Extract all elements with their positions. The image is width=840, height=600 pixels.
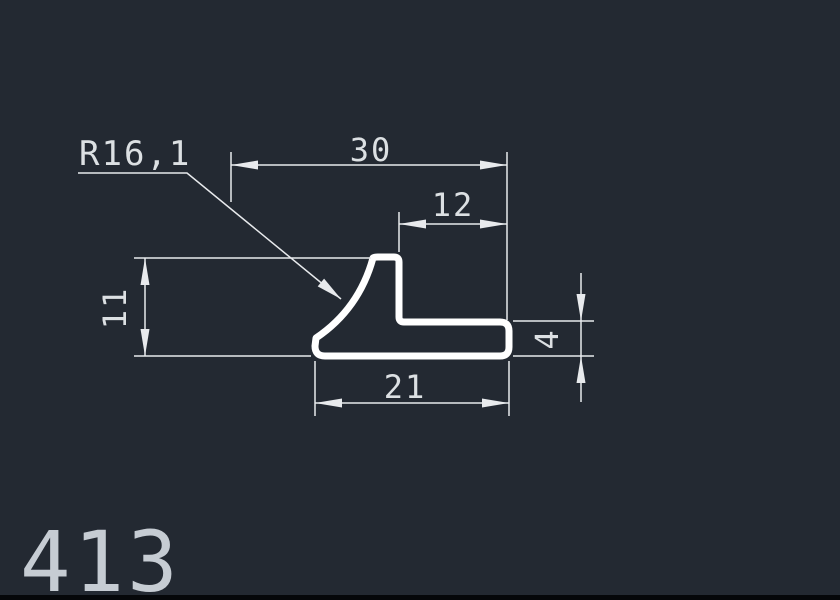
- dim-height-right: 4: [513, 273, 594, 402]
- dim-21-arrowhead-left: [315, 399, 342, 408]
- dim-width-top: 30: [231, 131, 507, 320]
- dim-width-step: 12: [399, 186, 507, 252]
- dim-12-arrowhead-left: [399, 220, 426, 229]
- radius-leader-arrowhead: [318, 279, 341, 299]
- dim-4-label: 4: [528, 328, 566, 349]
- dim-11-arrowhead-top: [141, 258, 150, 285]
- radius-leader-line: [78, 173, 341, 299]
- dim-12-label: 12: [432, 186, 475, 224]
- dim-21-label: 21: [384, 368, 427, 406]
- profile-outline: [315, 257, 509, 356]
- dim-30-arrowhead-right: [480, 161, 507, 170]
- dim-radius-leader: R16,1: [78, 134, 341, 299]
- dim-12-arrowhead-right: [480, 220, 507, 229]
- dim-30-arrowhead-left: [231, 161, 258, 170]
- dim-height-left: 11: [96, 258, 371, 356]
- dim-11-label: 11: [96, 287, 134, 330]
- bottom-bar: [0, 595, 840, 600]
- dim-4-arrowhead-bottom: [577, 356, 586, 383]
- dim-4-arrowhead-top: [577, 294, 586, 321]
- dim-11-arrowhead-bottom: [141, 329, 150, 356]
- dim-21-arrowhead-right: [482, 399, 509, 408]
- part-number-label: 413: [20, 513, 181, 600]
- dim-width-bottom: 21: [315, 361, 509, 416]
- cad-viewport[interactable]: R16,1 30 12 11: [0, 0, 840, 600]
- dim-radius-label: R16,1: [79, 134, 191, 174]
- dim-30-label: 30: [350, 131, 393, 169]
- drawing-canvas: R16,1 30 12 11: [0, 0, 840, 600]
